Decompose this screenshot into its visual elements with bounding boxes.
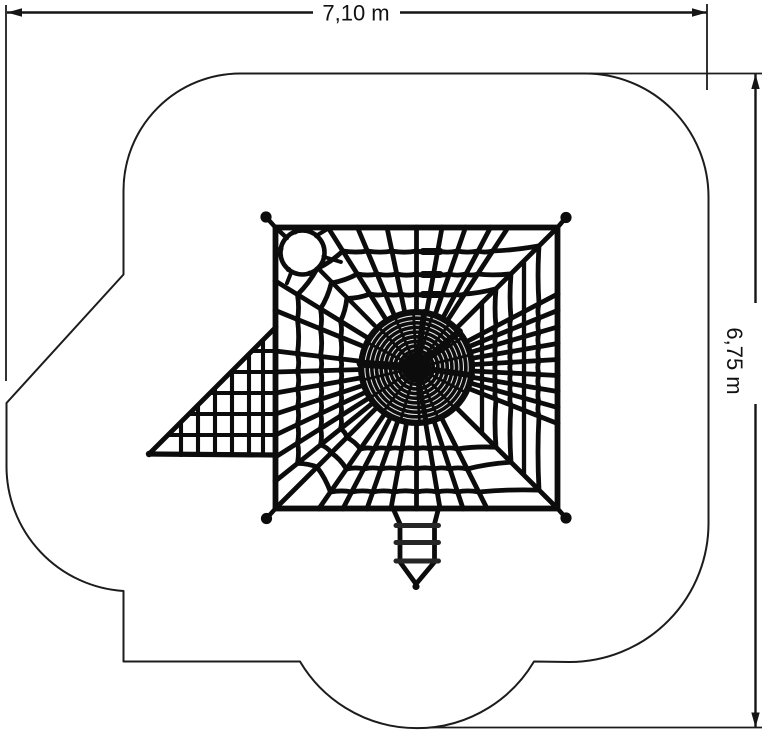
svg-text:7,10 m: 7,10 m — [322, 1, 389, 26]
svg-text:6,75 m: 6,75 m — [722, 327, 747, 394]
